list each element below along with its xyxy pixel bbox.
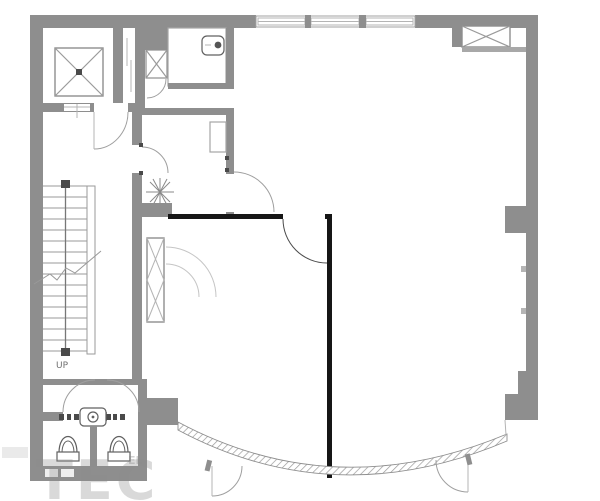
elevator-landing-door (64, 104, 90, 118)
pipe-shaft (147, 238, 164, 322)
door-swing-arc (283, 219, 327, 263)
closet (210, 122, 226, 152)
stair-stringer (87, 186, 95, 354)
handrail-post (61, 180, 70, 188)
entrance-door-left (205, 460, 242, 496)
floor-plan-drawing: UP (0, 0, 600, 501)
service-room (168, 28, 234, 89)
top-window-band (256, 15, 415, 28)
elevator-door-slot (127, 38, 131, 92)
meter-shaft (145, 28, 168, 98)
window-mullion (359, 15, 366, 28)
curtain-wall (178, 420, 507, 496)
floor-plan-canvas: UP (0, 0, 600, 501)
glazing-band (178, 422, 507, 475)
window-mullion (305, 15, 311, 28)
watermark: TEC EL (2, 447, 158, 501)
watermark-fragment: EL (128, 454, 143, 467)
staircase: UP (34, 180, 101, 371)
wall-joint-ticks (521, 266, 526, 314)
stairs-up-label: UP (56, 361, 69, 371)
door-swing-arc (166, 264, 199, 297)
door-swing-arc (147, 79, 166, 98)
shared-basin (80, 408, 106, 426)
room-door (139, 143, 168, 175)
vent-box-top-right (452, 26, 526, 52)
door-swing-arc (166, 247, 216, 297)
sink-fixture (202, 36, 224, 55)
plant-symbol (146, 178, 174, 206)
middle-room (132, 108, 274, 217)
elevator-shaft (30, 15, 145, 118)
bold-partition-wall (168, 214, 332, 478)
handrail-post (61, 348, 70, 356)
hall-door (94, 112, 128, 149)
wall-pier (505, 206, 526, 233)
